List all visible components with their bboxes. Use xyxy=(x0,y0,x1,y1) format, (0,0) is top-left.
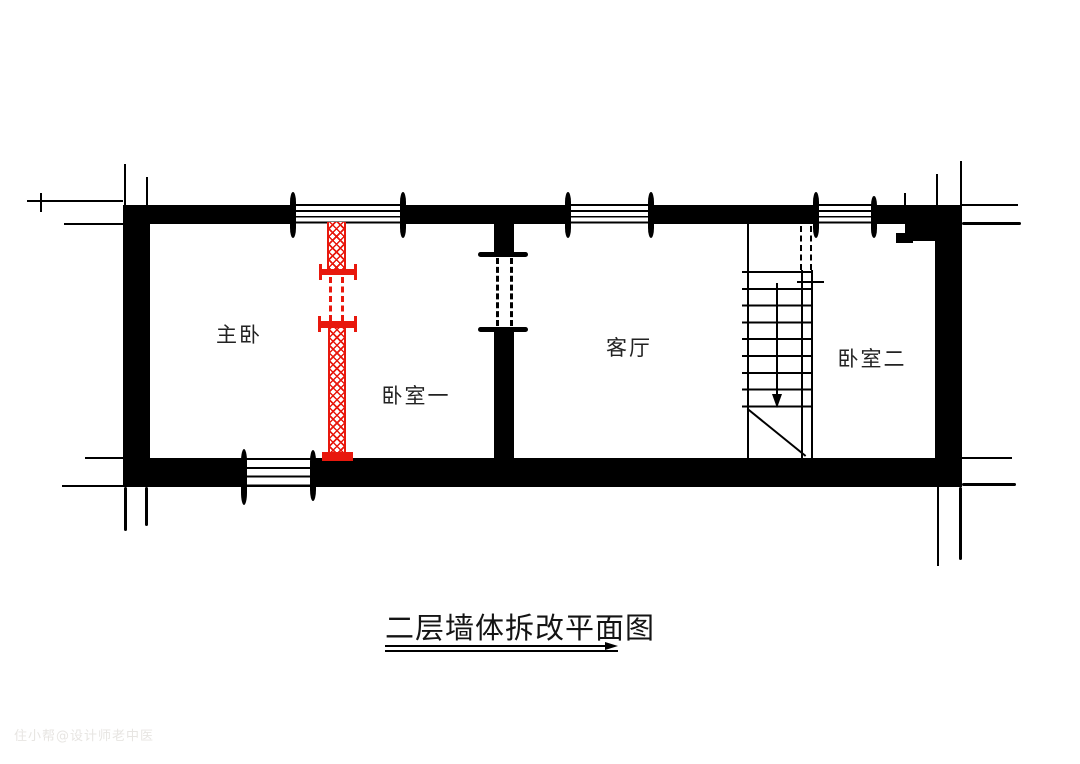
inner-wall-lower xyxy=(494,332,514,458)
window-top-2 xyxy=(570,204,650,224)
room-label-master-bedroom: 主卧 xyxy=(216,319,262,349)
extension-line xyxy=(962,483,1016,486)
extension-line xyxy=(959,487,962,560)
plan-title: 二层墙体拆改平面图 xyxy=(385,605,620,647)
modified-wall-cap-mid xyxy=(318,321,357,328)
wall-left xyxy=(123,205,150,487)
floor-plan-canvas: 主卧 卧室一 客厅 卧室二 二层墙体拆改平面图 住小帮@设计师老中医 xyxy=(0,0,1080,764)
extension-line xyxy=(85,457,123,459)
extension-line xyxy=(124,164,126,205)
extension-line xyxy=(936,174,938,205)
extension-line xyxy=(40,193,42,212)
stair-break-line xyxy=(797,281,824,283)
extension-line xyxy=(64,223,123,225)
extension-line xyxy=(960,161,962,205)
inner-wall-upper xyxy=(494,224,514,252)
modified-wall-upper-hatch xyxy=(327,222,346,269)
wall-right xyxy=(935,224,962,487)
room-label-bedroom-two: 卧室二 xyxy=(838,343,907,373)
modified-wall-cap-top xyxy=(319,269,357,275)
window-bottom-1-cap-left xyxy=(241,449,247,505)
stair-direction-arrowhead-icon xyxy=(772,394,782,408)
window-bottom-1 xyxy=(246,458,311,486)
stair-direction-line xyxy=(776,283,778,395)
window-top-3-cap-right xyxy=(871,196,877,238)
room-label-living-room: 客厅 xyxy=(606,332,652,362)
extension-line xyxy=(937,487,939,566)
modified-wall-door-dash-left xyxy=(329,277,332,321)
stair-cut-diagonal xyxy=(747,408,807,457)
title-underline-bottom xyxy=(385,650,618,652)
extension-line xyxy=(962,222,1021,225)
extension-line xyxy=(145,487,148,526)
title-underline-top xyxy=(385,645,607,647)
window-bottom-1-cap-right xyxy=(310,450,316,501)
window-top-1 xyxy=(295,204,403,224)
window-top-1-cap-right xyxy=(400,192,406,238)
title-underline-arrowhead-icon xyxy=(605,642,618,650)
extension-line xyxy=(962,204,1018,206)
room-label-bedroom-one: 卧室一 xyxy=(382,380,451,410)
extension-line xyxy=(962,457,1012,459)
modified-wall-cap-bottom xyxy=(322,452,353,461)
stair-rail-inner-dashed xyxy=(810,226,812,270)
window-top-1-cap-left xyxy=(290,192,296,238)
modified-wall-door-dash-right xyxy=(341,277,344,321)
inner-door-dash-left xyxy=(496,258,499,326)
extension-line xyxy=(124,487,127,531)
modified-wall-lower-hatch xyxy=(328,328,346,456)
watermark-text: 住小帮@设计师老中医 xyxy=(14,725,154,744)
stair-rail-outer-dashed xyxy=(800,226,802,270)
extension-line xyxy=(904,193,906,205)
extension-line xyxy=(62,485,123,487)
window-top-3 xyxy=(818,204,872,224)
window-top-2-cap-right xyxy=(648,192,654,238)
extension-line xyxy=(146,177,148,205)
wall-right-step xyxy=(905,224,962,241)
inner-door-dash-right xyxy=(510,258,513,326)
window-top-3-cap-left xyxy=(813,192,819,238)
wall-right-notch xyxy=(896,233,913,243)
inner-wall-cap-top xyxy=(478,252,528,257)
window-top-2-cap-left xyxy=(565,192,571,238)
